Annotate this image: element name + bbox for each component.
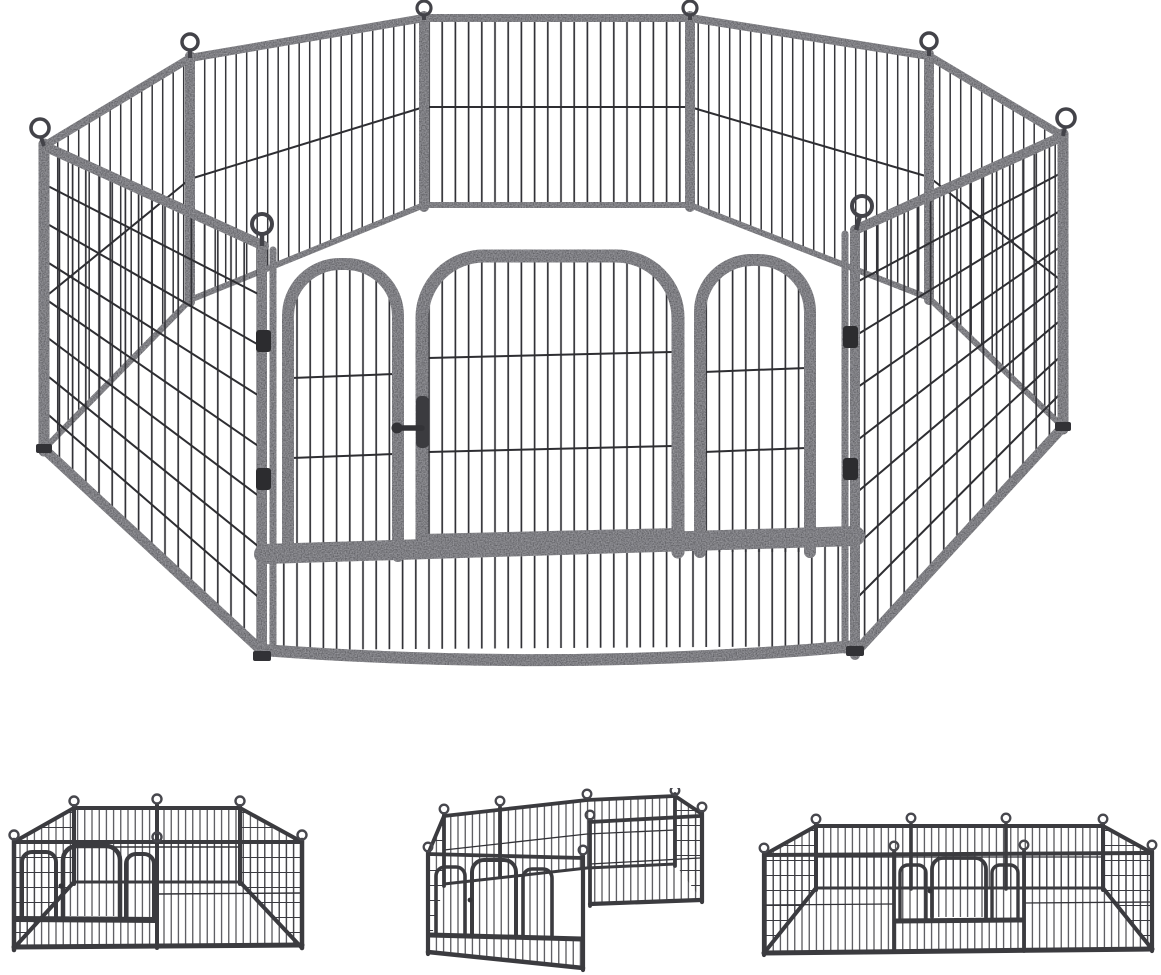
lshape-right-room — [587, 794, 702, 906]
gate-door-mesh — [422, 256, 678, 552]
product-photo-stage — [0, 0, 1161, 975]
lshape-gate-latch — [468, 898, 473, 903]
gate-lower-mesh — [266, 546, 853, 650]
rect-gate-latch — [928, 889, 933, 894]
rect-gate — [900, 858, 1018, 919]
playpen-main-octagon-view — [0, 0, 1161, 745]
thumbnail-lshape-layout — [404, 788, 714, 975]
gate-right-arch-mesh — [700, 260, 810, 552]
square-gate-latch — [58, 883, 63, 888]
gate-panel — [252, 196, 872, 661]
rect-front-face — [764, 851, 1152, 955]
gate-left-arch-mesh — [288, 264, 398, 556]
lshape-gate — [436, 860, 552, 937]
lshape-left-room — [428, 800, 587, 970]
thumbnail-rectangle-layout — [748, 793, 1158, 971]
thumbnail-square-layout — [2, 790, 334, 974]
back-center-panel — [424, 18, 690, 205]
square-gate — [22, 846, 154, 918]
